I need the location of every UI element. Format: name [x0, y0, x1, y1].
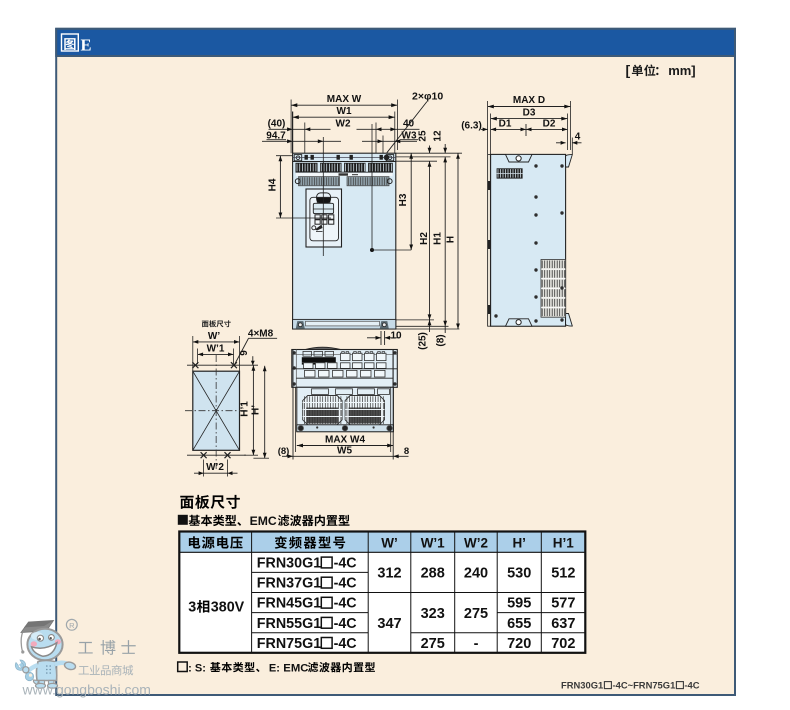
- svg-text:312: 312: [377, 566, 401, 582]
- svg-text:8: 8: [404, 446, 409, 457]
- svg-text:637: 637: [551, 616, 575, 632]
- svg-text:FRN45G1: FRN45G1: [257, 596, 321, 612]
- svg-text:H’: H’: [250, 405, 261, 415]
- svg-text:577: 577: [551, 596, 575, 612]
- svg-text:[: [: [626, 62, 631, 78]
- svg-text:380V: 380V: [211, 600, 245, 616]
- svg-text:H: H: [446, 236, 457, 243]
- svg-text:MAX D: MAX D: [513, 95, 545, 106]
- svg-text:-4C~FRN75G1: -4C~FRN75G1: [613, 680, 676, 691]
- svg-text:275: 275: [421, 636, 445, 652]
- svg-text:H2: H2: [419, 232, 430, 245]
- svg-text:3: 3: [188, 600, 196, 616]
- svg-text:E:: E:: [269, 662, 280, 674]
- svg-text:FRN55G1: FRN55G1: [257, 616, 321, 632]
- svg-text:W2: W2: [336, 118, 351, 129]
- svg-text:FRN30G1: FRN30G1: [561, 680, 603, 691]
- svg-text:H’1: H’1: [240, 401, 251, 417]
- svg-text:-4C: -4C: [334, 616, 357, 632]
- svg-text:E: E: [81, 36, 92, 55]
- svg-text:288: 288: [421, 566, 445, 582]
- svg-text:EMC: EMC: [250, 514, 277, 528]
- svg-text:655: 655: [507, 616, 531, 632]
- svg-text:595: 595: [507, 596, 531, 612]
- svg-text:-4C: -4C: [334, 636, 357, 652]
- svg-text:25: 25: [418, 130, 429, 142]
- svg-text:W’: W’: [208, 331, 220, 342]
- svg-text:H3: H3: [398, 193, 409, 206]
- svg-text:512: 512: [551, 566, 575, 582]
- svg-text:S:: S:: [195, 662, 206, 674]
- svg-text:www.gongboshi.com: www.gongboshi.com: [22, 682, 151, 698]
- svg-text:323: 323: [421, 606, 445, 622]
- svg-text:W’1: W’1: [421, 536, 445, 551]
- svg-text::: :: [188, 662, 192, 674]
- svg-text:2×φ10: 2×φ10: [412, 91, 443, 103]
- svg-text:-4C: -4C: [334, 556, 357, 572]
- svg-text:530: 530: [507, 566, 531, 582]
- svg-text:H’: H’: [512, 536, 526, 551]
- svg-text:EMC: EMC: [283, 662, 308, 674]
- svg-text:-4C: -4C: [684, 680, 699, 691]
- svg-text:D2: D2: [543, 118, 556, 129]
- svg-text:(25): (25): [418, 332, 429, 350]
- svg-text:FRN75G1: FRN75G1: [257, 636, 321, 652]
- svg-text:702: 702: [551, 636, 575, 652]
- svg-text:W5: W5: [337, 445, 352, 456]
- svg-text:FRN30G1: FRN30G1: [257, 556, 321, 572]
- svg-text:12: 12: [433, 130, 444, 142]
- svg-text:4: 4: [575, 132, 581, 143]
- svg-text:W’2: W’2: [464, 536, 488, 551]
- svg-text:W’: W’: [381, 536, 398, 551]
- svg-text:275: 275: [464, 606, 488, 622]
- svg-text:347: 347: [377, 616, 401, 632]
- svg-text:D3: D3: [523, 107, 536, 118]
- svg-text:R: R: [69, 621, 75, 630]
- svg-text:-4C: -4C: [334, 596, 357, 612]
- svg-text:9: 9: [239, 350, 250, 356]
- svg-text:-: -: [474, 636, 479, 652]
- svg-text:(40): (40): [268, 118, 286, 129]
- svg-text:(8): (8): [278, 446, 290, 457]
- svg-text:10: 10: [391, 331, 403, 342]
- svg-text:240: 240: [464, 566, 488, 582]
- svg-text:H4: H4: [267, 178, 278, 191]
- svg-text:mm]: mm]: [668, 63, 695, 78]
- svg-text:H’1: H’1: [553, 536, 575, 551]
- svg-text:(8): (8): [436, 334, 447, 346]
- svg-text:FRN37G1: FRN37G1: [257, 576, 321, 592]
- svg-text:W’2: W’2: [206, 462, 224, 473]
- svg-text:(6.3): (6.3): [461, 121, 482, 132]
- svg-text:D1: D1: [499, 118, 512, 129]
- svg-text:W’1: W’1: [207, 344, 225, 355]
- svg-text:MAX W4: MAX W4: [325, 434, 365, 445]
- svg-text:W1: W1: [337, 106, 352, 117]
- svg-text:MAX W: MAX W: [327, 94, 362, 105]
- svg-text:H1: H1: [432, 232, 443, 245]
- svg-text:-4C: -4C: [334, 576, 357, 592]
- svg-text:720: 720: [507, 636, 531, 652]
